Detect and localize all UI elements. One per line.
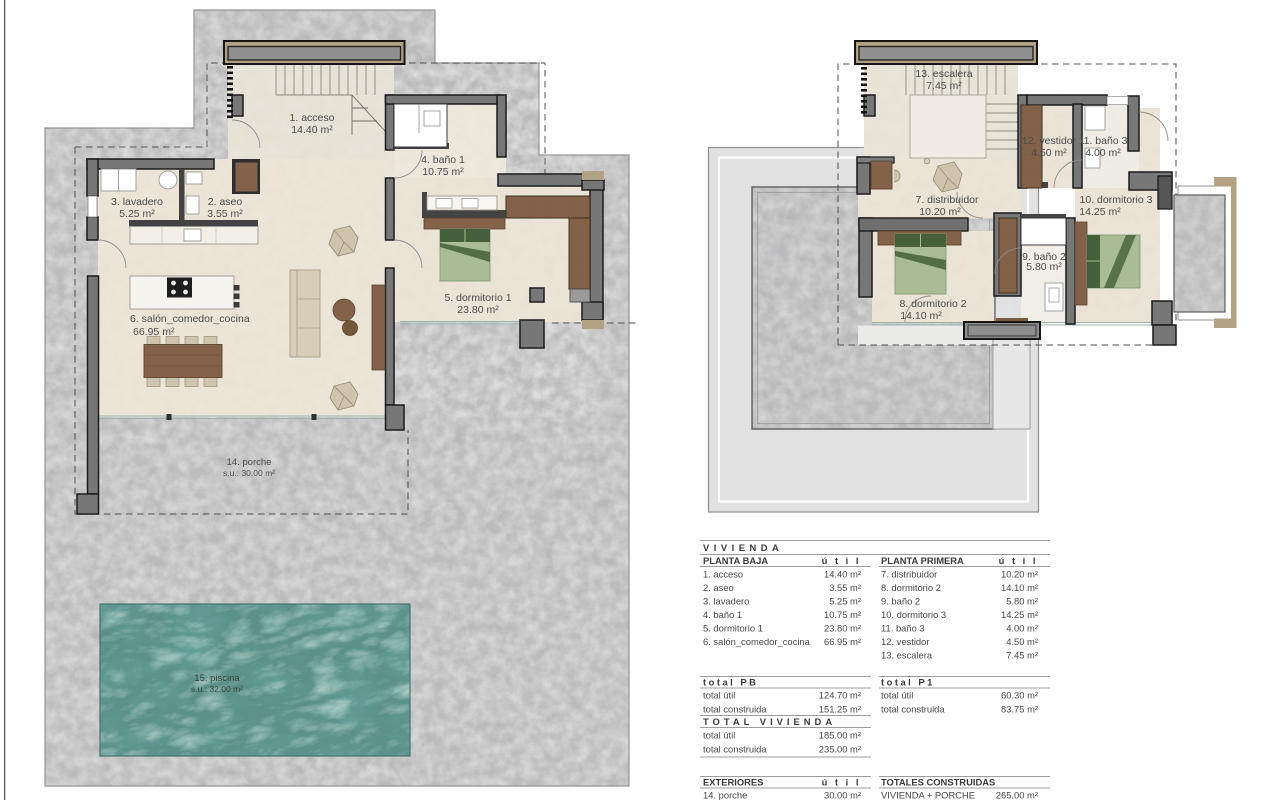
svg-text:4.00 m²: 4.00 m² bbox=[1085, 147, 1121, 159]
svg-text:235.00 m²: 235.00 m² bbox=[819, 744, 861, 755]
svg-text:2. aseo: 2. aseo bbox=[703, 582, 734, 593]
svg-text:14. porche: 14. porche bbox=[227, 457, 272, 468]
svg-text:30.00 m²: 30.00 m² bbox=[824, 790, 861, 800]
svg-text:23.80 m²: 23.80 m² bbox=[457, 304, 499, 316]
svg-text:8. dormitorio 2: 8. dormitorio 2 bbox=[881, 582, 941, 593]
svg-text:9. baño 2: 9. baño 2 bbox=[881, 596, 920, 607]
svg-text:11. baño 3: 11. baño 3 bbox=[881, 623, 925, 634]
svg-text:total construida: total construida bbox=[703, 704, 767, 715]
svg-text:14.25 m²: 14.25 m² bbox=[1079, 206, 1121, 218]
svg-text:ú t i l: ú t i l bbox=[999, 555, 1038, 566]
svg-text:265.00 m²: 265.00 m² bbox=[996, 790, 1038, 800]
svg-text:14.40 m²: 14.40 m² bbox=[291, 124, 333, 136]
svg-text:60.30 m²: 60.30 m² bbox=[1001, 690, 1038, 701]
svg-text:PLANTA BAJA: PLANTA BAJA bbox=[703, 555, 768, 566]
svg-text:total útil: total útil bbox=[881, 690, 913, 701]
svg-text:s.u.: 32.00 m²: s.u.: 32.00 m² bbox=[191, 684, 243, 694]
svg-text:5.25 m²: 5.25 m² bbox=[119, 208, 155, 220]
svg-text:6. salón_comedor_cocina: 6. salón_comedor_cocina bbox=[703, 636, 811, 647]
svg-text:EXTERIORES: EXTERIORES bbox=[703, 777, 763, 788]
svg-text:7. distribuidor: 7. distribuidor bbox=[915, 194, 979, 206]
svg-text:4.50 m²: 4.50 m² bbox=[1006, 636, 1038, 647]
svg-text:3.55 m²: 3.55 m² bbox=[207, 208, 243, 220]
svg-text:4.00 m²: 4.00 m² bbox=[1006, 623, 1038, 634]
svg-text:10. dormitorio 3: 10. dormitorio 3 bbox=[1080, 194, 1153, 206]
svg-text:66.95 m²: 66.95 m² bbox=[824, 636, 861, 647]
svg-text:185.00 m²: 185.00 m² bbox=[819, 730, 861, 741]
svg-text:5.80 m²: 5.80 m² bbox=[1026, 261, 1062, 273]
svg-text:1. acceso: 1. acceso bbox=[290, 112, 335, 124]
svg-text:VIVIENDA: VIVIENDA bbox=[703, 542, 783, 553]
svg-text:5.80 m²: 5.80 m² bbox=[1006, 596, 1038, 607]
svg-text:10.20 m²: 10.20 m² bbox=[919, 206, 961, 218]
svg-text:10. dormitorio 3: 10. dormitorio 3 bbox=[881, 609, 946, 620]
svg-text:14.25 m²: 14.25 m² bbox=[1001, 609, 1038, 620]
svg-text:s.u.: 30.00 m²: s.u.: 30.00 m² bbox=[223, 468, 275, 478]
svg-text:13. escalera: 13. escalera bbox=[915, 68, 972, 80]
svg-text:12. vestidor: 12. vestidor bbox=[881, 636, 929, 647]
svg-text:7.45 m²: 7.45 m² bbox=[1006, 650, 1038, 661]
svg-text:5. dormitorio 1: 5. dormitorio 1 bbox=[703, 623, 763, 634]
svg-text:15. piscina: 15. piscina bbox=[194, 673, 240, 684]
svg-text:3. lavadero: 3. lavadero bbox=[111, 196, 163, 208]
svg-text:total útil: total útil bbox=[703, 730, 735, 741]
svg-text:TOTAL VIVIENDA: TOTAL VIVIENDA bbox=[703, 716, 836, 727]
svg-text:14.40 m²: 14.40 m² bbox=[824, 569, 861, 580]
svg-text:2. aseo: 2. aseo bbox=[208, 196, 243, 208]
svg-text:4.50 m²: 4.50 m² bbox=[1031, 147, 1067, 159]
svg-text:11. baño 3: 11. baño 3 bbox=[1079, 135, 1128, 147]
svg-text:7. distribuidor: 7. distribuidor bbox=[881, 569, 937, 580]
svg-text:4. baño 1: 4. baño 1 bbox=[421, 154, 465, 166]
svg-text:5. dormitorio 1: 5. dormitorio 1 bbox=[444, 292, 511, 304]
svg-text:83.75 m²: 83.75 m² bbox=[1001, 704, 1038, 715]
svg-text:TOTALES CONSTRUIDAS: TOTALES CONSTRUIDAS bbox=[881, 777, 995, 788]
svg-text:total P1: total P1 bbox=[881, 677, 935, 688]
svg-text:ú t i l: ú t i l bbox=[822, 777, 861, 788]
svg-text:3.55 m²: 3.55 m² bbox=[829, 582, 861, 593]
svg-text:124.70 m²: 124.70 m² bbox=[819, 690, 861, 701]
svg-text:14. porche: 14. porche bbox=[703, 790, 747, 800]
svg-text:23.80 m²: 23.80 m² bbox=[824, 623, 861, 634]
svg-text:14.10 m²: 14.10 m² bbox=[900, 310, 942, 322]
svg-text:4. baño 1: 4. baño 1 bbox=[703, 609, 742, 620]
svg-text:7.45 m²: 7.45 m² bbox=[926, 80, 962, 92]
svg-text:total construida: total construida bbox=[703, 744, 767, 755]
svg-text:VIVIENDA + PORCHE: VIVIENDA + PORCHE bbox=[881, 790, 975, 800]
svg-text:PLANTA PRIMERA: PLANTA PRIMERA bbox=[881, 555, 964, 566]
svg-text:ú t i l: ú t i l bbox=[822, 555, 861, 566]
svg-text:5.25 m²: 5.25 m² bbox=[829, 596, 861, 607]
svg-text:1. acceso: 1. acceso bbox=[703, 569, 743, 580]
svg-text:14.10 m²: 14.10 m² bbox=[1001, 582, 1038, 593]
svg-text:6. salón_comedor_cocina: 6. salón_comedor_cocina bbox=[130, 313, 250, 325]
svg-text:10.20 m²: 10.20 m² bbox=[1001, 569, 1038, 580]
svg-text:13. escalera: 13. escalera bbox=[881, 650, 933, 661]
svg-text:total útil: total útil bbox=[703, 690, 735, 701]
svg-text:151.25 m²: 151.25 m² bbox=[819, 704, 861, 715]
svg-text:3. lavadero: 3. lavadero bbox=[703, 596, 749, 607]
svg-text:total PB: total PB bbox=[703, 677, 758, 688]
svg-text:10.75 m²: 10.75 m² bbox=[824, 609, 861, 620]
svg-text:8. dormitorio 2: 8. dormitorio 2 bbox=[899, 298, 966, 310]
svg-text:12. vestidor: 12. vestidor bbox=[1022, 135, 1077, 147]
svg-text:10.75 m²: 10.75 m² bbox=[422, 166, 464, 178]
svg-text:total construida: total construida bbox=[881, 704, 945, 715]
svg-text:66.95 m²: 66.95 m² bbox=[133, 326, 175, 338]
